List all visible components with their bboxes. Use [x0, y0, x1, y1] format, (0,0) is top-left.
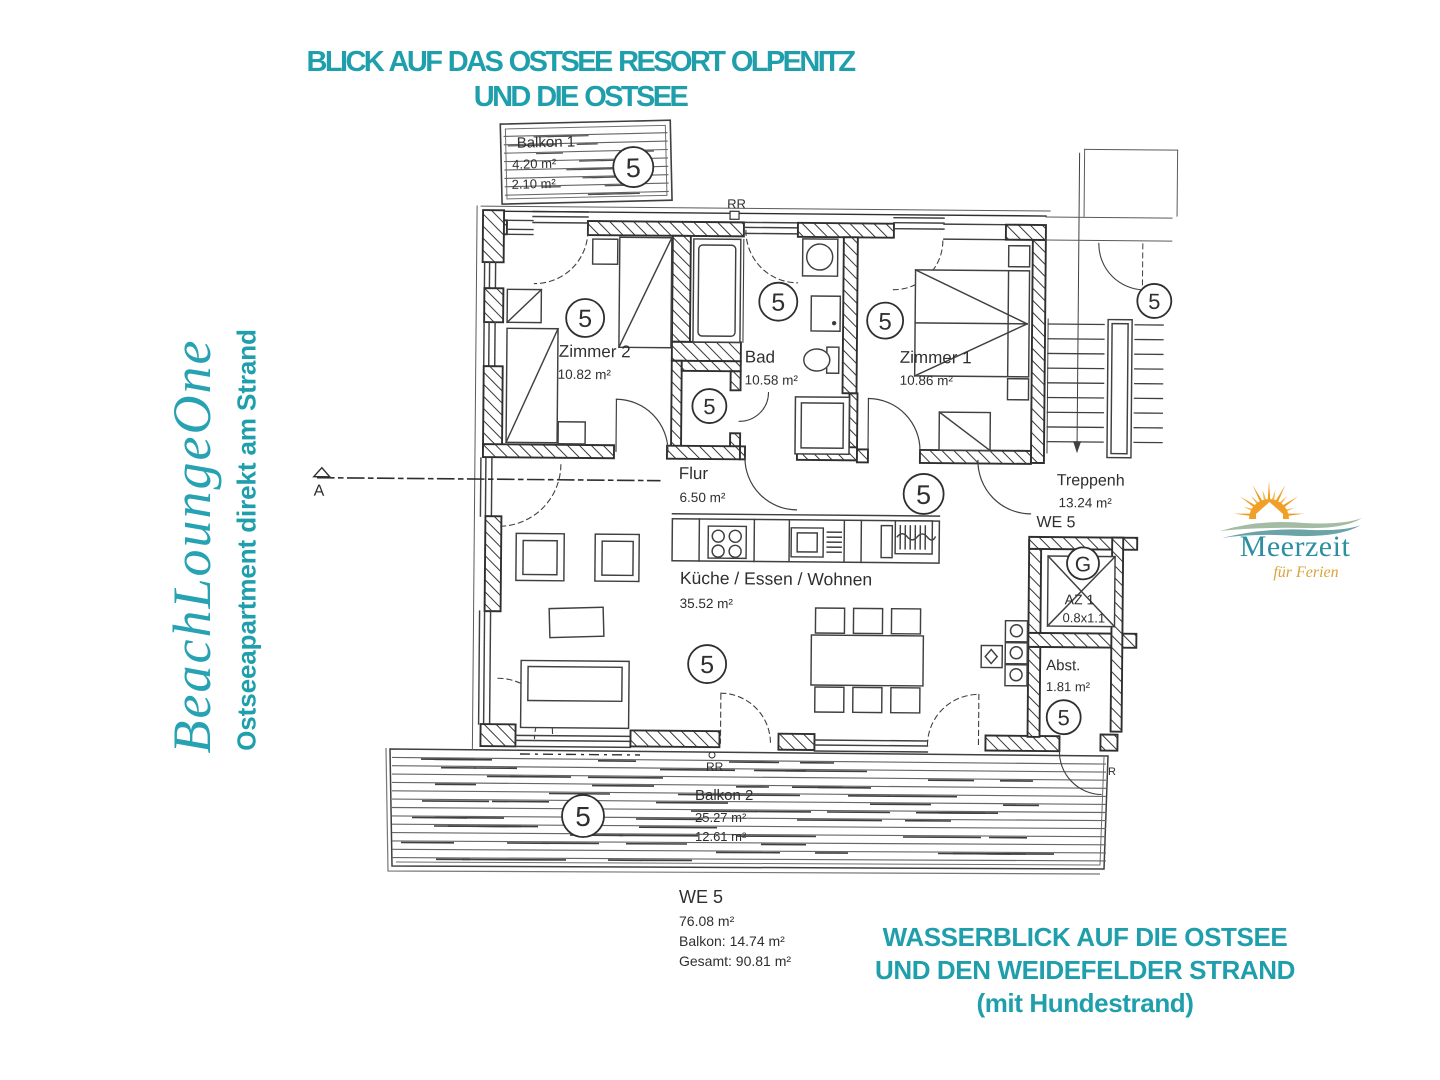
- svg-text:WE 5: WE 5: [679, 887, 723, 907]
- svg-text:10.58 m²: 10.58 m²: [745, 372, 799, 387]
- svg-text:Balkon: 14.74 m²: Balkon: 14.74 m²: [679, 933, 785, 949]
- svg-text:für Ferien: für Ferien: [1273, 564, 1338, 581]
- svg-text:Küche / Essen / Wohnen: Küche / Essen / Wohnen: [680, 568, 872, 590]
- svg-text:2.10 m²: 2.10 m²: [511, 176, 556, 192]
- svg-text:12.61 m²: 12.61 m²: [695, 829, 747, 844]
- svg-text:35.52 m²: 35.52 m²: [680, 596, 734, 611]
- svg-text:Gesamt: 90.81 m²: Gesamt: 90.81 m²: [679, 953, 791, 969]
- svg-text:5: 5: [575, 801, 591, 832]
- svg-text:5: 5: [771, 289, 785, 317]
- svg-text:Flur: Flur: [679, 464, 709, 483]
- svg-text:G: G: [1075, 553, 1092, 576]
- svg-text:RR: RR: [727, 196, 746, 211]
- svg-text:Meerzeit: Meerzeit: [1240, 530, 1351, 563]
- svg-text:5: 5: [878, 309, 892, 336]
- svg-text:10.86 m²: 10.86 m²: [900, 373, 954, 388]
- svg-text:10.82 m²: 10.82 m²: [558, 367, 612, 382]
- svg-text:5: 5: [700, 651, 714, 679]
- svg-text:Balkon 1: Balkon 1: [517, 133, 576, 151]
- svg-text:5: 5: [625, 153, 641, 183]
- svg-text:RR: RR: [706, 760, 724, 774]
- svg-text:76.08 m²: 76.08 m²: [679, 913, 735, 929]
- svg-text:AZ 1: AZ 1: [1065, 591, 1095, 607]
- svg-text:25.27 m²: 25.27 m²: [695, 810, 747, 825]
- svg-text:Bad: Bad: [745, 347, 775, 366]
- svg-text:5: 5: [916, 480, 931, 510]
- svg-text:Zimmer 2: Zimmer 2: [559, 342, 631, 362]
- svg-text:Abst.: Abst.: [1046, 657, 1080, 674]
- svg-text:0.8x1.1: 0.8x1.1: [1062, 610, 1105, 625]
- svg-text:5: 5: [1057, 705, 1069, 730]
- svg-text:5: 5: [1148, 289, 1160, 314]
- svg-text:13.24 m²: 13.24 m²: [1058, 495, 1112, 510]
- svg-text:Treppenh: Treppenh: [1057, 472, 1125, 490]
- svg-text:R: R: [1108, 766, 1116, 778]
- svg-text:A: A: [314, 483, 325, 500]
- svg-text:Balkon 2: Balkon 2: [695, 787, 753, 804]
- svg-text:5: 5: [578, 305, 592, 333]
- svg-text:5: 5: [703, 394, 715, 419]
- svg-text:WE 5: WE 5: [1036, 514, 1075, 531]
- svg-text:1.81 m²: 1.81 m²: [1046, 679, 1091, 694]
- svg-text:4.20 m²: 4.20 m²: [512, 156, 557, 172]
- svg-text:6.50 m²: 6.50 m²: [680, 490, 726, 505]
- svg-text:Zimmer 1: Zimmer 1: [900, 348, 972, 368]
